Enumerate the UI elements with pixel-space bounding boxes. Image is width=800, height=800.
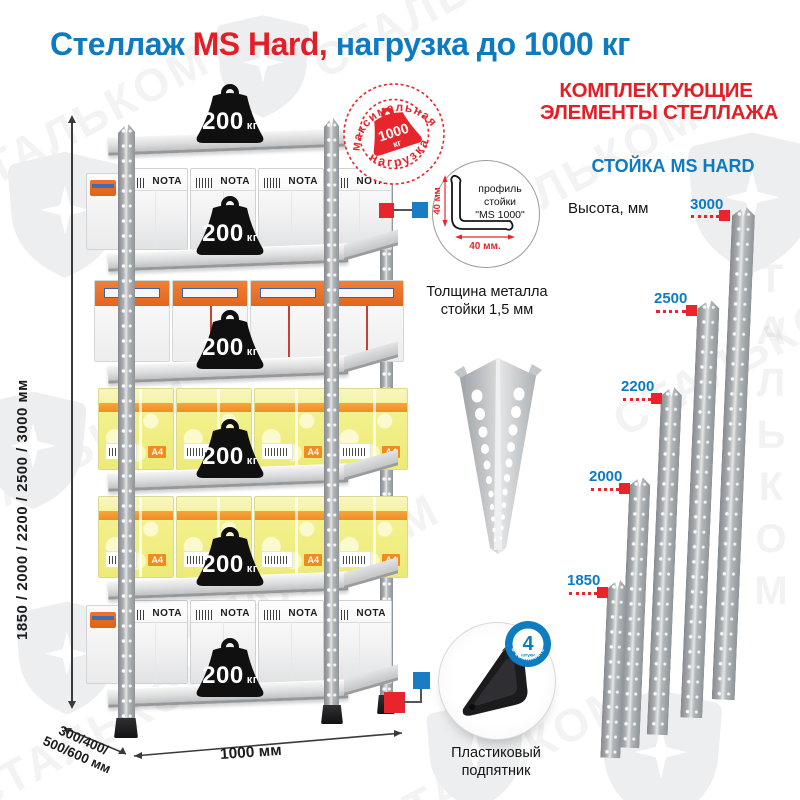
profile-dim-vertical: 40 мм xyxy=(433,187,443,214)
a4-label: A4 xyxy=(304,446,322,458)
leader-square xyxy=(719,210,730,221)
weight-text: 200кг xyxy=(182,220,278,248)
box-label xyxy=(182,288,238,298)
title-part-blue2: нагрузка до 1000 кг xyxy=(327,26,630,62)
leader-square xyxy=(619,483,630,494)
nota-label: NOTA xyxy=(220,176,250,187)
weight-text: 200кг xyxy=(182,334,278,362)
weight-200kg: 200кг xyxy=(182,196,278,256)
box-seam xyxy=(359,622,360,683)
post-height-label: 2200 xyxy=(621,378,654,395)
corner-post-photo xyxy=(450,352,546,564)
leader-dots xyxy=(591,488,619,491)
leader-dots xyxy=(623,398,651,401)
leader-square xyxy=(686,305,697,316)
nota-label: NOTA xyxy=(288,176,318,187)
leader-dots xyxy=(691,215,719,218)
product-box-yellow: A4 xyxy=(98,388,174,470)
arrow-up-icon xyxy=(68,115,76,123)
box-seam xyxy=(155,622,156,683)
post-height-label: 2000 xyxy=(589,468,622,485)
profile-diagram: 40 мм 40 мм. профиль стойки "MS 1000" xyxy=(433,161,539,267)
weight-200kg: 200кг xyxy=(182,419,278,479)
components-heading-line2: ЭЛЕМЕНТЫ СТЕЛЛАЖА xyxy=(540,101,772,125)
page-title: Стеллаж MS Hard, нагрузка до 1000 кг xyxy=(50,26,630,63)
post-height-label: 2500 xyxy=(654,290,687,307)
box-stripe xyxy=(99,511,173,520)
marker-blue-square xyxy=(412,202,428,218)
profile-label-3: "MS 1000" xyxy=(475,209,525,221)
title-part-red: MS Hard, xyxy=(193,26,328,62)
box-label xyxy=(338,288,394,298)
weight-200kg: 200кг xyxy=(182,84,278,144)
box-label xyxy=(92,616,114,620)
leader-square xyxy=(651,393,662,404)
weight-200kg: 200кг xyxy=(182,527,278,587)
leader-dots xyxy=(656,310,686,313)
box-strap xyxy=(295,389,298,469)
title-part-blue: Стеллаж xyxy=(50,26,193,62)
box-lid xyxy=(90,180,116,196)
box-stripe xyxy=(333,403,407,412)
nota-label: NOTA xyxy=(152,608,182,619)
profile-label-2: стойки xyxy=(484,196,516,208)
box-label xyxy=(92,184,114,188)
post-subheading: СТОЙКА MS HARD xyxy=(575,156,771,177)
box-strap xyxy=(295,497,298,577)
marker-line xyxy=(404,688,426,706)
marker-blue-square xyxy=(413,672,430,689)
box-seam xyxy=(291,190,292,249)
weight-200kg: 200кг xyxy=(182,638,278,698)
marker-red-square xyxy=(384,692,405,713)
product-box-yellow: A4 xyxy=(98,496,174,578)
weight-200kg: 200кг xyxy=(182,310,278,370)
nota-label: NOTA xyxy=(220,608,250,619)
arrow-down-icon xyxy=(68,701,76,709)
box-stripe xyxy=(177,511,251,520)
leader-square xyxy=(597,587,608,598)
shelf-front-left-post xyxy=(118,124,135,720)
marker-line xyxy=(393,209,413,211)
weight-text: 200кг xyxy=(182,662,278,690)
height-dimension-line xyxy=(71,117,73,707)
profile-label-1: профиль xyxy=(478,183,522,195)
qty-badge: 4 штуки в комплекте xyxy=(504,620,552,668)
infographic-canvas: СТАЛЬКОМ СТАЛЬКОМ СТАЛЬКОМ СТАЛЬКОМ СТАЛ… xyxy=(0,0,800,800)
shelf-front-right-post xyxy=(324,118,339,708)
marker-red-square xyxy=(379,203,394,218)
a4-label: A4 xyxy=(148,446,166,458)
plastic-foot-caption: Пластиковый подпятник xyxy=(430,744,562,780)
weight-text: 200кг xyxy=(182,108,278,136)
box-label xyxy=(260,288,316,298)
thickness-caption: Толщина металла стойки 1,5 мм xyxy=(418,283,556,319)
components-heading-line1: КОМПЛЕКТУЮЩИЕ xyxy=(540,79,772,103)
box-stripe xyxy=(177,403,251,412)
barcode-icon xyxy=(264,610,281,620)
box-lid xyxy=(90,612,116,628)
product-box-paper xyxy=(86,173,120,250)
box-stripe xyxy=(99,403,173,412)
a4-label: A4 xyxy=(304,554,322,566)
box-stripe xyxy=(255,403,329,412)
profile-dim-horizontal: 40 мм. xyxy=(469,241,501,252)
box-seam xyxy=(288,306,290,357)
height-units-label: Высота, мм xyxy=(568,200,648,217)
weight-text: 200кг xyxy=(182,551,278,579)
leader-dots xyxy=(569,592,597,595)
box-stripe xyxy=(333,511,407,520)
nota-label: NOTA xyxy=(152,176,182,187)
height-options-label: 1850 / 2000 / 2200 / 2500 / 3000 мм xyxy=(14,310,31,710)
nota-label: NOTA xyxy=(288,608,318,619)
box-strap xyxy=(139,389,142,469)
weight-text: 200кг xyxy=(182,443,278,471)
product-box-paper xyxy=(86,605,120,684)
box-stripe xyxy=(255,511,329,520)
barcode-icon xyxy=(196,610,213,620)
post-height-label: 1850 xyxy=(567,572,600,589)
post-profile-figure: 40 мм 40 мм. профиль стойки "MS 1000" xyxy=(432,160,540,268)
box-seam xyxy=(291,622,292,683)
box-strap xyxy=(139,497,142,577)
nota-label: NOTA xyxy=(356,608,386,619)
box-seam xyxy=(155,190,156,249)
barcode-icon xyxy=(196,178,213,188)
barcode-icon xyxy=(264,178,281,188)
a4-label: A4 xyxy=(148,554,166,566)
